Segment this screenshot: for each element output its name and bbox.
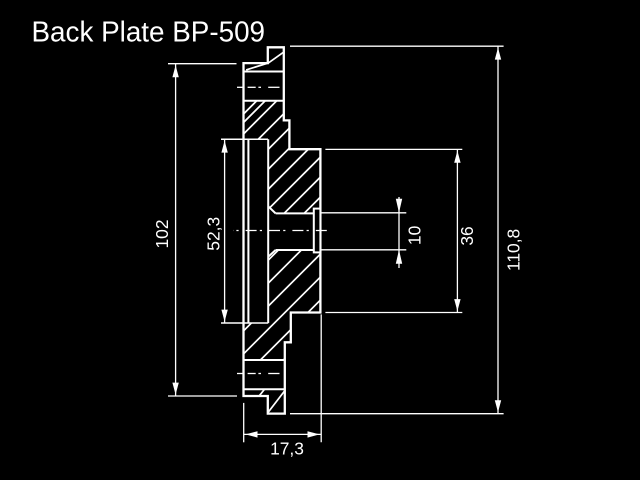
svg-text:17,3: 17,3 [270,439,304,459]
svg-text:102: 102 [152,219,172,248]
svg-text:52,3: 52,3 [203,217,223,251]
svg-text:Back Plate BP-509: Back Plate BP-509 [32,16,266,49]
svg-text:110,8: 110,8 [504,229,524,271]
svg-text:10: 10 [404,226,424,245]
svg-text:36: 36 [457,226,477,245]
